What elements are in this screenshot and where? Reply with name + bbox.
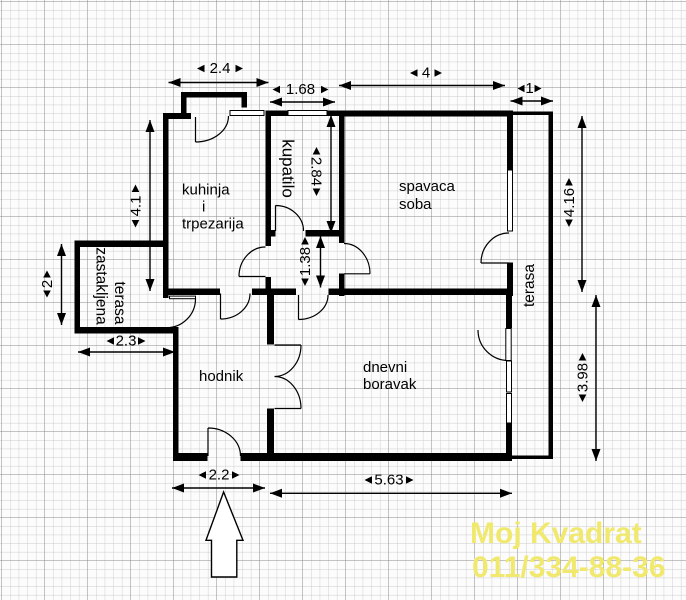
svg-text:5.63: 5.63 <box>374 472 403 489</box>
svg-text:trpezarija: trpezarija <box>182 216 244 233</box>
svg-text:dnevni: dnevni <box>363 359 407 376</box>
svg-text:4: 4 <box>422 65 430 82</box>
svg-text:zastakljena: zastakljena <box>93 247 110 325</box>
svg-text:1.38: 1.38 <box>297 247 314 276</box>
svg-text:Moj Kvadrat: Moj Kvadrat <box>470 517 642 550</box>
svg-text:4.1: 4.1 <box>128 196 145 217</box>
svg-text:1: 1 <box>525 80 533 97</box>
svg-text:i: i <box>202 199 205 216</box>
svg-text:kuhinja: kuhinja <box>182 182 230 199</box>
svg-text:1.68: 1.68 <box>286 81 315 98</box>
svg-text:2.4: 2.4 <box>210 60 231 77</box>
svg-text:terasa: terasa <box>111 281 128 324</box>
svg-text:011/334-88-36: 011/334-88-36 <box>472 551 666 584</box>
svg-text:hodnik: hodnik <box>199 368 244 385</box>
svg-text:2: 2 <box>39 280 56 288</box>
svg-text:2.2: 2.2 <box>209 467 230 484</box>
svg-text:terasa: terasa <box>521 264 538 307</box>
svg-text:spavaca: spavaca <box>399 178 456 195</box>
svg-text:3.98: 3.98 <box>575 363 592 392</box>
svg-text:boravak: boravak <box>363 376 417 393</box>
svg-text:4.16: 4.16 <box>561 188 578 217</box>
svg-text:kupatilo: kupatilo <box>279 139 298 198</box>
svg-text:2.84: 2.84 <box>308 157 325 186</box>
svg-text:soba: soba <box>399 196 432 213</box>
svg-text:2.3: 2.3 <box>116 333 137 350</box>
